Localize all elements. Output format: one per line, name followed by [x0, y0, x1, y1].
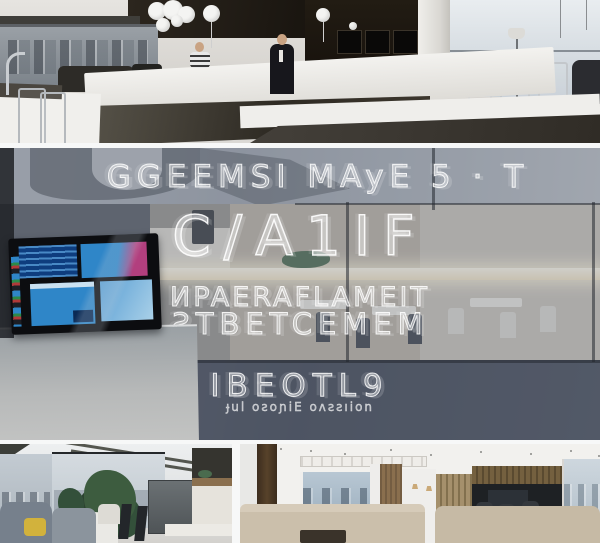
kitchenette-plant — [198, 470, 212, 478]
gray-counter — [0, 324, 199, 440]
receptionist-head — [277, 34, 287, 45]
dark-stool — [118, 504, 132, 539]
photo-living-room — [240, 444, 600, 543]
balloon-string — [211, 22, 212, 48]
divider-vertical — [232, 444, 240, 543]
balloon — [316, 8, 330, 22]
kitchenette-wood-shelf — [192, 478, 232, 486]
wall-art-panel — [393, 30, 418, 54]
photo-lounge — [0, 444, 232, 543]
kitchenette-counter — [165, 524, 232, 536]
seated-person-torso — [190, 52, 210, 68]
ceiling-vent — [300, 456, 427, 467]
floor-lamp-shade — [508, 28, 525, 39]
seated-person-head — [195, 42, 204, 52]
coffee-table — [300, 530, 346, 543]
hanging-rod — [586, 0, 587, 30]
wall-art-panel — [337, 30, 362, 54]
photo-lobby — [0, 0, 600, 143]
hanging-rod — [560, 0, 561, 38]
kitchenette-lower-cabinet — [192, 486, 232, 524]
divider-horizontal-top — [0, 143, 600, 148]
beige-sofa-right — [435, 506, 600, 543]
dark-stool — [134, 506, 148, 541]
balloon — [171, 15, 183, 27]
receptionist-shirt — [279, 50, 283, 62]
white-chair — [98, 504, 120, 524]
interior-collage: GGEEMSI MAyE 5 · T C/A1IF ИPAERAFLAMEIT … — [0, 0, 600, 543]
divider-horizontal-bottom — [0, 440, 600, 444]
lobby-ceiling-edge — [0, 16, 140, 24]
yellow-pillow — [24, 518, 46, 536]
glass-text-line1: GGEEMSI MAyE 5 · T — [0, 159, 600, 195]
gray-armchair — [52, 508, 96, 543]
balloon — [203, 5, 220, 22]
wall-art-panel — [365, 30, 390, 54]
balloon — [349, 22, 357, 30]
balloon-string — [323, 22, 324, 42]
recessed-lights — [280, 448, 282, 450]
photo-glass-text: GGEEMSI MAyE 5 · T C/A1IF ИPAERAFLAMEIT … — [0, 148, 600, 440]
media-wall-slats — [472, 466, 562, 484]
chrome-stool — [40, 92, 66, 143]
balloon — [156, 18, 170, 32]
monitor-glare — [8, 233, 162, 335]
video-wall-monitor — [8, 233, 162, 335]
